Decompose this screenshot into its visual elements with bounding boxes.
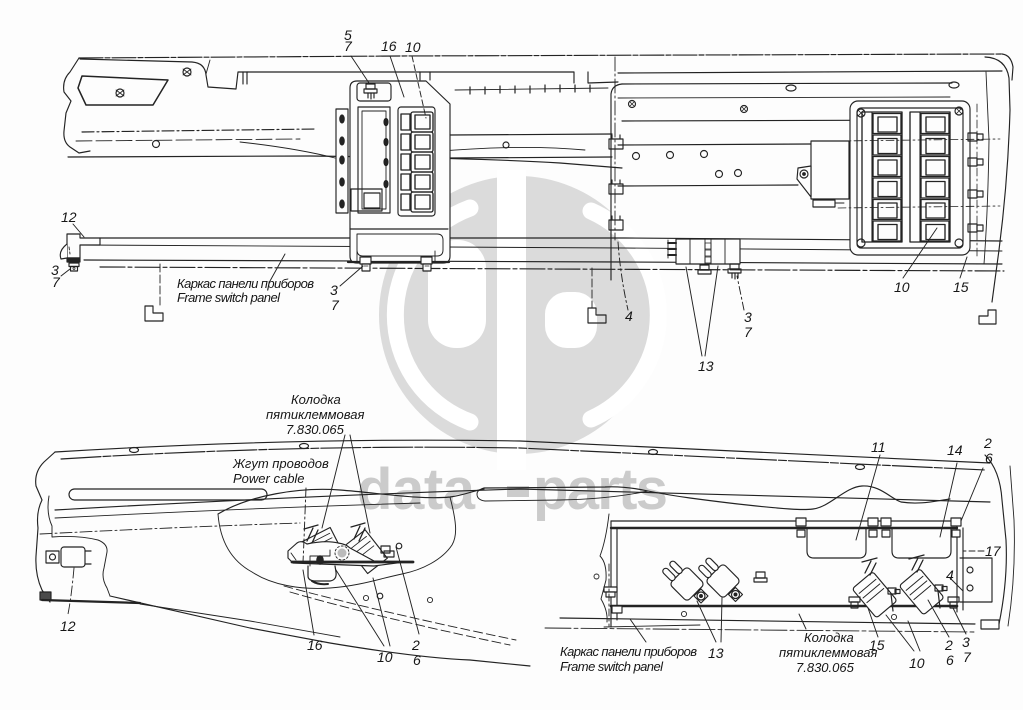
svg-text:Жгут проводов: Жгут проводов: [232, 456, 329, 471]
svg-text:6: 6: [413, 652, 421, 668]
svg-text:12: 12: [60, 618, 76, 634]
svg-text:7: 7: [331, 297, 340, 313]
svg-text:Колодка: Колодка: [291, 392, 341, 407]
svg-text:7.830.065: 7.830.065: [796, 660, 855, 675]
svg-text:13: 13: [708, 645, 724, 661]
svg-text:пятиклеммовая: пятиклеммовая: [779, 645, 877, 660]
svg-text:4: 4: [946, 567, 954, 583]
svg-text:14: 14: [947, 442, 963, 458]
svg-text:12: 12: [61, 209, 77, 225]
svg-text:6: 6: [985, 450, 993, 466]
svg-text:Каркас панели приборов: Каркас панели приборов: [177, 276, 314, 291]
svg-text:7: 7: [963, 649, 972, 665]
svg-text:7: 7: [744, 324, 753, 340]
svg-text:4: 4: [625, 308, 633, 324]
svg-text:11: 11: [871, 439, 886, 455]
svg-text:Колодка: Колодка: [804, 630, 854, 645]
svg-text:2: 2: [411, 637, 420, 653]
svg-text:7: 7: [52, 274, 61, 290]
svg-text:10: 10: [894, 279, 910, 295]
svg-text:15: 15: [953, 279, 969, 295]
svg-text:2: 2: [944, 637, 953, 653]
svg-text:17: 17: [985, 543, 1002, 559]
svg-text:3: 3: [962, 634, 970, 650]
svg-text:пятиклеммовая: пятиклеммовая: [266, 407, 364, 422]
svg-text:Power cable: Power cable: [233, 471, 305, 486]
svg-text:16: 16: [381, 38, 397, 54]
svg-text:7: 7: [344, 38, 353, 54]
svg-text:Каркас панели приборов: Каркас панели приборов: [560, 644, 697, 659]
svg-text:3: 3: [330, 282, 338, 298]
svg-text:10: 10: [377, 649, 393, 665]
svg-text:3: 3: [744, 309, 752, 325]
svg-text:10: 10: [405, 39, 421, 55]
svg-text:15: 15: [869, 637, 885, 653]
svg-text:Frame switch panel: Frame switch panel: [560, 659, 664, 674]
svg-text:7.830.065: 7.830.065: [286, 422, 345, 437]
svg-text:2: 2: [983, 435, 992, 451]
svg-text:10: 10: [909, 655, 925, 671]
svg-text:6: 6: [946, 652, 954, 668]
svg-text:16: 16: [307, 637, 323, 653]
svg-text:Frame switch panel: Frame switch panel: [177, 290, 281, 305]
svg-text:13: 13: [698, 358, 714, 374]
